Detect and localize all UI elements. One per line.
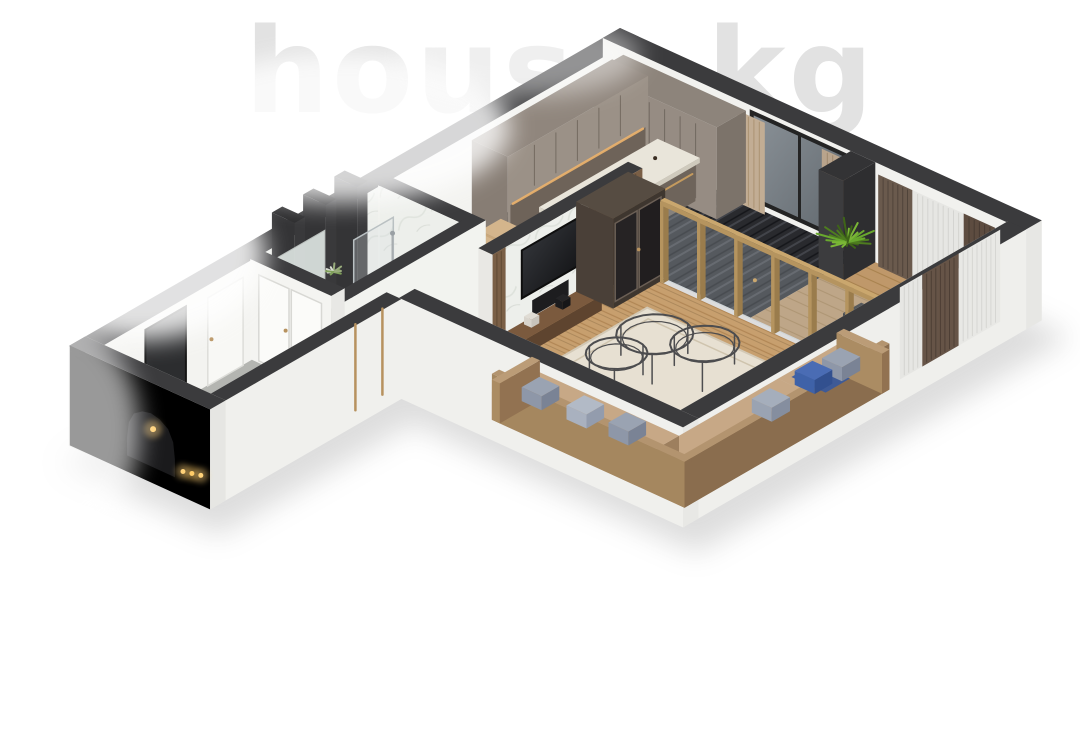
shower-head	[390, 231, 395, 236]
structural-pillar	[819, 151, 876, 281]
partition-gold-post	[660, 199, 669, 284]
partition-gold-post	[734, 232, 743, 317]
wardrobe-pull	[637, 248, 641, 252]
partition-gold-post	[771, 249, 780, 334]
white-fade	[15, 170, 265, 340]
arch-light	[144, 420, 162, 438]
partition-knob	[753, 278, 757, 282]
door-gold-handle	[209, 337, 213, 341]
wardrobe-glass-door	[615, 211, 637, 302]
floorplan-image: house.kg	[0, 0, 1080, 745]
door-gold-handle	[284, 329, 288, 333]
partition-gold-post	[697, 216, 706, 301]
floorplan-render: house.kg	[0, 0, 1080, 745]
floor-light	[193, 468, 208, 483]
white-fade	[400, 13, 640, 97]
wardrobe-glass-door	[639, 197, 661, 288]
